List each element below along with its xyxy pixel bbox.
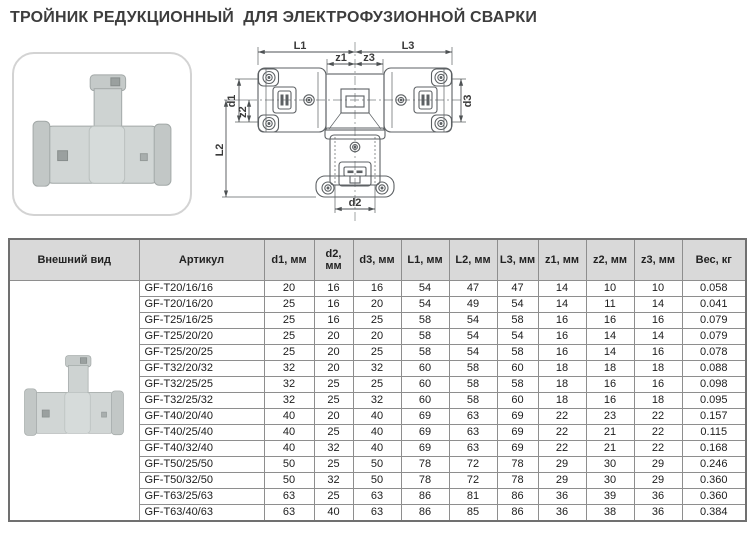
value-cell-L2: 58 xyxy=(449,393,497,409)
value-cell-L3: 60 xyxy=(497,361,538,377)
dim-label-z2: z2 xyxy=(237,106,249,118)
dim-label-d1: d1 xyxy=(226,95,238,108)
value-cell-L1: 58 xyxy=(401,313,449,329)
column-header: z3, мм xyxy=(634,239,682,281)
value-cell-z1: 18 xyxy=(538,377,586,393)
column-header: L2, мм xyxy=(449,239,497,281)
value-cell-z3: 36 xyxy=(634,489,682,505)
column-header: L1, мм xyxy=(401,239,449,281)
value-cell-d3: 16 xyxy=(353,281,401,297)
value-cell-d3: 63 xyxy=(353,489,401,505)
value-cell-weight: 0.058 xyxy=(682,281,746,297)
article-cell: GF-T32/20/32 xyxy=(139,361,264,377)
value-cell-z2: 16 xyxy=(586,393,634,409)
value-cell-z3: 29 xyxy=(634,457,682,473)
value-cell-z1: 36 xyxy=(538,489,586,505)
value-cell-z2: 21 xyxy=(586,441,634,457)
value-cell-d1: 25 xyxy=(264,297,314,313)
value-cell-L3: 47 xyxy=(497,281,538,297)
article-cell: GF-T20/16/16 xyxy=(139,281,264,297)
value-cell-L1: 69 xyxy=(401,441,449,457)
column-header: Артикул xyxy=(139,239,264,281)
product-photo-frame xyxy=(12,52,192,216)
article-cell: GF-T40/20/40 xyxy=(139,409,264,425)
value-cell-weight: 0.098 xyxy=(682,377,746,393)
value-cell-d2: 16 xyxy=(314,313,353,329)
value-cell-weight: 0.095 xyxy=(682,393,746,409)
value-cell-L2: 63 xyxy=(449,441,497,457)
column-header: d3, мм xyxy=(353,239,401,281)
value-cell-weight: 0.079 xyxy=(682,329,746,345)
value-cell-L2: 54 xyxy=(449,345,497,361)
value-cell-d3: 40 xyxy=(353,441,401,457)
value-cell-z3: 22 xyxy=(634,441,682,457)
value-cell-d2: 20 xyxy=(314,345,353,361)
article-cell: GF-T32/25/25 xyxy=(139,377,264,393)
column-header: z2, мм xyxy=(586,239,634,281)
article-cell: GF-T40/32/40 xyxy=(139,441,264,457)
dim-label-L3: L3 xyxy=(402,40,415,52)
value-cell-d3: 50 xyxy=(353,457,401,473)
appearance-cell xyxy=(9,281,139,522)
value-cell-L3: 54 xyxy=(497,297,538,313)
value-cell-z1: 16 xyxy=(538,329,586,345)
value-cell-d1: 32 xyxy=(264,377,314,393)
value-cell-d3: 32 xyxy=(353,393,401,409)
value-cell-d1: 25 xyxy=(264,345,314,361)
value-cell-z1: 29 xyxy=(538,473,586,489)
value-cell-d2: 20 xyxy=(314,329,353,345)
value-cell-z1: 16 xyxy=(538,345,586,361)
value-cell-d1: 63 xyxy=(264,505,314,522)
article-cell: GF-T50/25/50 xyxy=(139,457,264,473)
value-cell-z2: 14 xyxy=(586,345,634,361)
product-photo xyxy=(28,70,176,198)
value-cell-d3: 25 xyxy=(353,345,401,361)
article-cell: GF-T63/40/63 xyxy=(139,505,264,522)
column-header: L3, мм xyxy=(497,239,538,281)
value-cell-z2: 10 xyxy=(586,281,634,297)
value-cell-L2: 58 xyxy=(449,361,497,377)
value-cell-L2: 49 xyxy=(449,297,497,313)
page-title: ТРОЙНИК РЕДУКЦИОННЫЙ ДЛЯ ЭЛЕКТРОФУЗИОННО… xyxy=(10,9,537,27)
value-cell-d2: 32 xyxy=(314,473,353,489)
value-cell-d2: 25 xyxy=(314,425,353,441)
value-cell-z3: 29 xyxy=(634,473,682,489)
value-cell-weight: 0.157 xyxy=(682,409,746,425)
value-cell-L3: 86 xyxy=(497,489,538,505)
value-cell-d2: 20 xyxy=(314,361,353,377)
column-header: Вес, кг xyxy=(682,239,746,281)
value-cell-z3: 22 xyxy=(634,409,682,425)
value-cell-L1: 60 xyxy=(401,361,449,377)
value-cell-L2: 63 xyxy=(449,425,497,441)
value-cell-z1: 18 xyxy=(538,361,586,377)
value-cell-z1: 36 xyxy=(538,505,586,522)
value-cell-L2: 85 xyxy=(449,505,497,522)
column-header: d1, мм xyxy=(264,239,314,281)
article-cell: GF-T63/25/63 xyxy=(139,489,264,505)
value-cell-z3: 14 xyxy=(634,329,682,345)
value-cell-L2: 54 xyxy=(449,313,497,329)
value-cell-d2: 20 xyxy=(314,409,353,425)
value-cell-d3: 32 xyxy=(353,361,401,377)
value-cell-z2: 39 xyxy=(586,489,634,505)
value-cell-d1: 50 xyxy=(264,457,314,473)
value-cell-z1: 22 xyxy=(538,425,586,441)
dimensions-table: Внешний видАртикулd1, ммd2, ммd3, ммL1, … xyxy=(8,238,747,522)
article-cell: GF-T25/20/20 xyxy=(139,329,264,345)
value-cell-weight: 0.115 xyxy=(682,425,746,441)
value-cell-z1: 14 xyxy=(538,281,586,297)
value-cell-z1: 29 xyxy=(538,457,586,473)
value-cell-z3: 14 xyxy=(634,297,682,313)
value-cell-weight: 0.079 xyxy=(682,313,746,329)
value-cell-L1: 60 xyxy=(401,377,449,393)
value-cell-d1: 63 xyxy=(264,489,314,505)
product-thumbnail xyxy=(21,352,127,444)
value-cell-d2: 25 xyxy=(314,489,353,505)
value-cell-L1: 69 xyxy=(401,409,449,425)
article-cell: GF-T32/25/32 xyxy=(139,393,264,409)
article-cell: GF-T50/32/50 xyxy=(139,473,264,489)
value-cell-z2: 16 xyxy=(586,377,634,393)
value-cell-z2: 11 xyxy=(586,297,634,313)
value-cell-L2: 81 xyxy=(449,489,497,505)
value-cell-L3: 78 xyxy=(497,473,538,489)
table-row: GF-T20/16/162016165447471410100.058 xyxy=(9,281,746,297)
value-cell-L1: 54 xyxy=(401,297,449,313)
article-cell: GF-T25/16/25 xyxy=(139,313,264,329)
value-cell-z2: 21 xyxy=(586,425,634,441)
article-cell: GF-T25/20/25 xyxy=(139,345,264,361)
value-cell-weight: 0.384 xyxy=(682,505,746,522)
value-cell-L1: 78 xyxy=(401,473,449,489)
value-cell-z3: 10 xyxy=(634,281,682,297)
value-cell-L1: 78 xyxy=(401,457,449,473)
value-cell-z1: 14 xyxy=(538,297,586,313)
value-cell-L3: 58 xyxy=(497,377,538,393)
value-cell-L1: 60 xyxy=(401,393,449,409)
value-cell-L2: 47 xyxy=(449,281,497,297)
article-cell: GF-T40/25/40 xyxy=(139,425,264,441)
value-cell-d2: 16 xyxy=(314,297,353,313)
value-cell-z3: 16 xyxy=(634,345,682,361)
value-cell-d2: 25 xyxy=(314,393,353,409)
value-cell-z3: 22 xyxy=(634,425,682,441)
value-cell-weight: 0.078 xyxy=(682,345,746,361)
value-cell-d1: 40 xyxy=(264,409,314,425)
value-cell-z1: 16 xyxy=(538,313,586,329)
value-cell-d3: 50 xyxy=(353,473,401,489)
value-cell-d1: 40 xyxy=(264,425,314,441)
value-cell-z2: 30 xyxy=(586,473,634,489)
dim-label-z1: z1 xyxy=(335,52,347,64)
value-cell-d3: 20 xyxy=(353,329,401,345)
value-cell-L1: 58 xyxy=(401,345,449,361)
value-cell-z3: 36 xyxy=(634,505,682,522)
value-cell-weight: 0.088 xyxy=(682,361,746,377)
value-cell-z3: 18 xyxy=(634,361,682,377)
value-cell-L1: 69 xyxy=(401,425,449,441)
value-cell-L3: 60 xyxy=(497,393,538,409)
value-cell-d1: 25 xyxy=(264,329,314,345)
value-cell-d1: 32 xyxy=(264,361,314,377)
value-cell-d1: 50 xyxy=(264,473,314,489)
value-cell-L2: 54 xyxy=(449,329,497,345)
value-cell-L3: 69 xyxy=(497,409,538,425)
value-cell-z3: 18 xyxy=(634,393,682,409)
value-cell-z1: 18 xyxy=(538,393,586,409)
value-cell-z2: 14 xyxy=(586,329,634,345)
value-cell-d3: 20 xyxy=(353,297,401,313)
value-cell-d3: 40 xyxy=(353,409,401,425)
value-cell-L3: 78 xyxy=(497,457,538,473)
value-cell-z2: 38 xyxy=(586,505,634,522)
dim-label-L1: L1 xyxy=(294,40,307,52)
table-header-row: Внешний видАртикулd1, ммd2, ммd3, ммL1, … xyxy=(9,239,746,281)
value-cell-L2: 58 xyxy=(449,377,497,393)
value-cell-d3: 40 xyxy=(353,425,401,441)
value-cell-L2: 63 xyxy=(449,409,497,425)
value-cell-d1: 32 xyxy=(264,393,314,409)
value-cell-z1: 22 xyxy=(538,409,586,425)
value-cell-d3: 25 xyxy=(353,313,401,329)
dim-label-z3: z3 xyxy=(363,52,375,64)
value-cell-z3: 16 xyxy=(634,313,682,329)
value-cell-d2: 40 xyxy=(314,505,353,522)
value-cell-d1: 40 xyxy=(264,441,314,457)
value-cell-L3: 54 xyxy=(497,329,538,345)
value-cell-L1: 86 xyxy=(401,489,449,505)
value-cell-L1: 58 xyxy=(401,329,449,345)
dim-label-d3: d3 xyxy=(462,95,474,108)
value-cell-z2: 23 xyxy=(586,409,634,425)
value-cell-L1: 54 xyxy=(401,281,449,297)
value-cell-z1: 22 xyxy=(538,441,586,457)
column-header: z1, мм xyxy=(538,239,586,281)
value-cell-L3: 86 xyxy=(497,505,538,522)
dim-label-d2: d2 xyxy=(349,197,362,209)
column-header: d2, мм xyxy=(314,239,353,281)
value-cell-L3: 69 xyxy=(497,425,538,441)
value-cell-L2: 72 xyxy=(449,473,497,489)
value-cell-weight: 0.360 xyxy=(682,489,746,505)
value-cell-d1: 20 xyxy=(264,281,314,297)
value-cell-z2: 30 xyxy=(586,457,634,473)
table-body: GF-T20/16/162016165447471410100.058GF-T2… xyxy=(9,281,746,522)
dim-label-L2: L2 xyxy=(214,144,226,157)
value-cell-z2: 16 xyxy=(586,313,634,329)
value-cell-d2: 16 xyxy=(314,281,353,297)
value-cell-L1: 86 xyxy=(401,505,449,522)
value-cell-weight: 0.246 xyxy=(682,457,746,473)
value-cell-z3: 16 xyxy=(634,377,682,393)
value-cell-d3: 63 xyxy=(353,505,401,522)
value-cell-L3: 69 xyxy=(497,441,538,457)
value-cell-weight: 0.360 xyxy=(682,473,746,489)
value-cell-d2: 25 xyxy=(314,377,353,393)
value-cell-L2: 72 xyxy=(449,457,497,473)
column-header: Внешний вид xyxy=(9,239,139,281)
value-cell-d3: 25 xyxy=(353,377,401,393)
value-cell-d2: 25 xyxy=(314,457,353,473)
value-cell-d2: 32 xyxy=(314,441,353,457)
technical-drawing: L1 L3 z1 z3 d1 z2 L2 d3 d2 xyxy=(212,37,474,229)
value-cell-L3: 58 xyxy=(497,313,538,329)
value-cell-z2: 18 xyxy=(586,361,634,377)
article-cell: GF-T20/16/20 xyxy=(139,297,264,313)
value-cell-L3: 58 xyxy=(497,345,538,361)
value-cell-d1: 25 xyxy=(264,313,314,329)
value-cell-weight: 0.168 xyxy=(682,441,746,457)
value-cell-weight: 0.041 xyxy=(682,297,746,313)
